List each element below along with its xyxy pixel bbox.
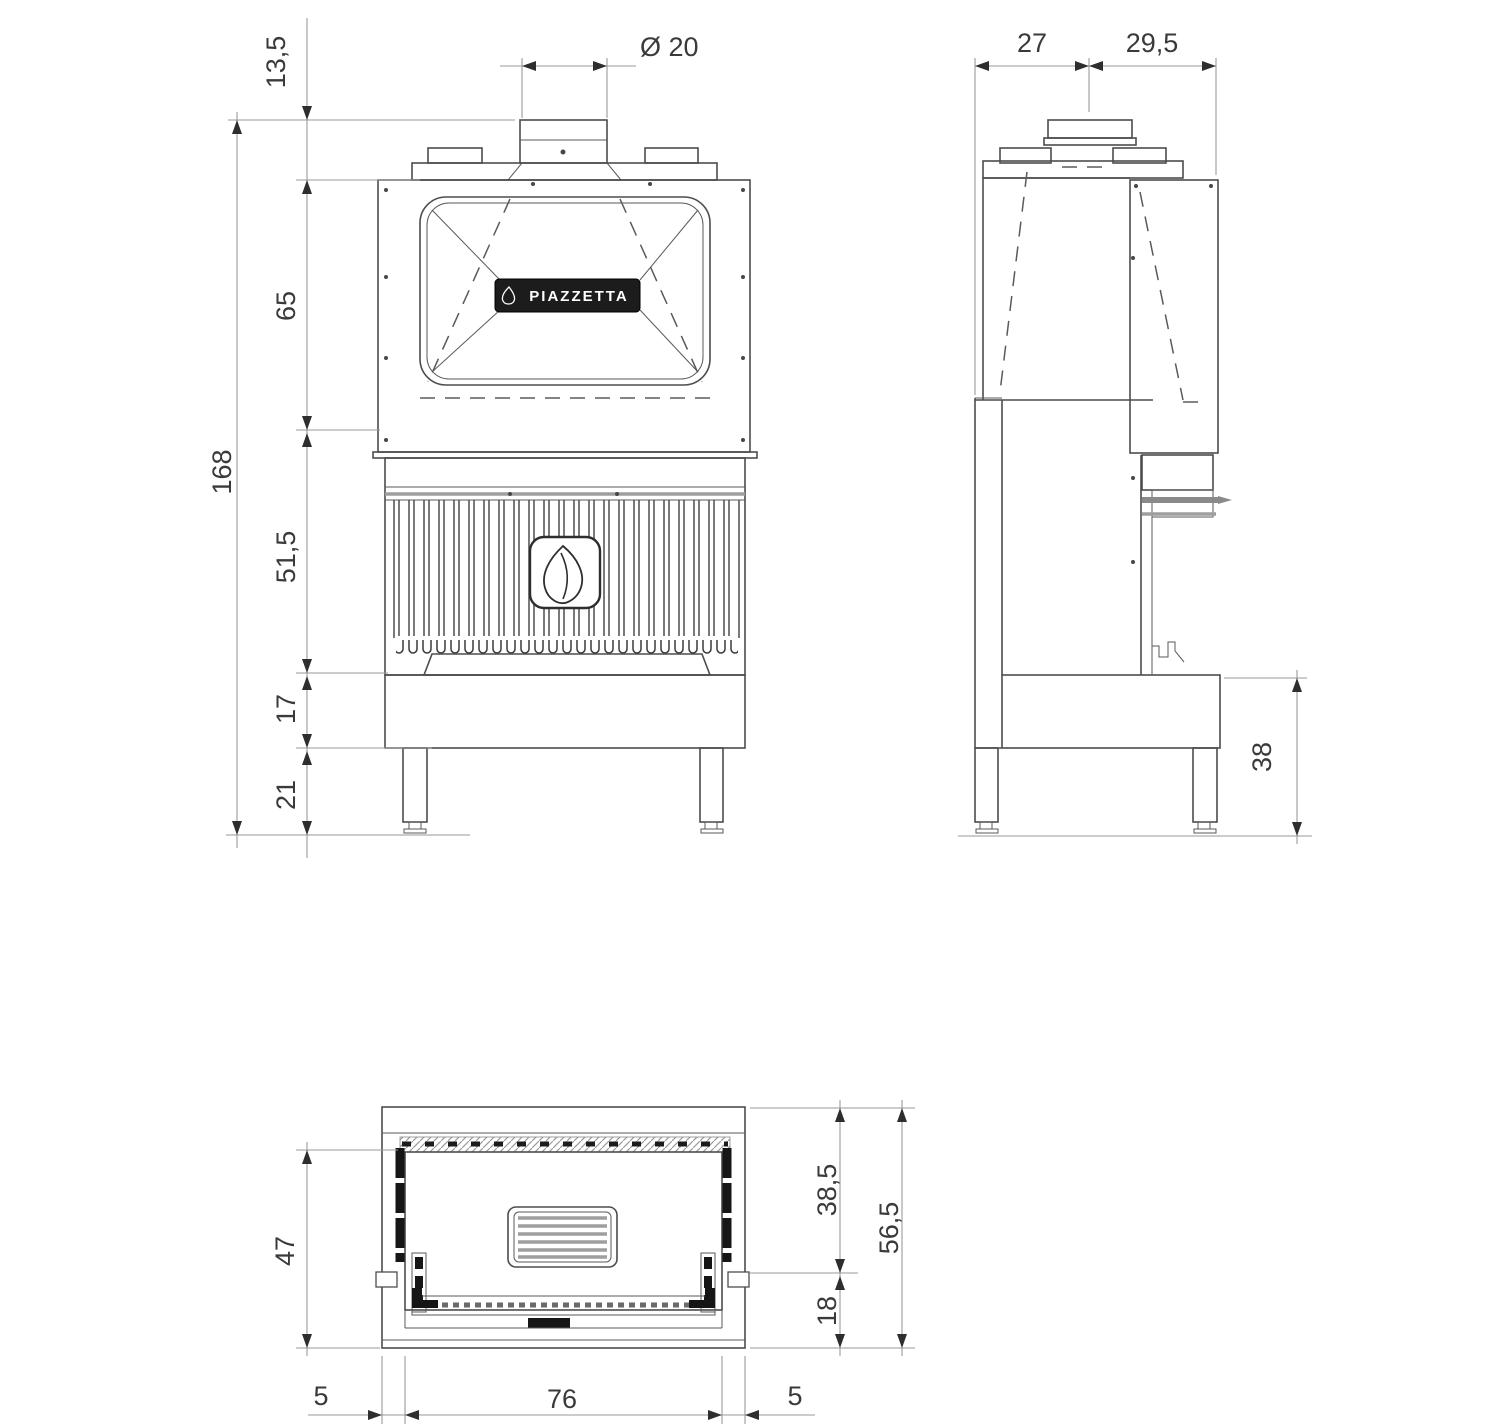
dim-label-total-depth: 56,5 [874, 1202, 904, 1255]
left-side-notch [376, 1272, 397, 1287]
louver-vent [508, 1207, 617, 1267]
dim-label-front-section-depth: 38,5 [812, 1164, 842, 1217]
side-hood [975, 167, 1218, 564]
brand-label: PIAZZETTA [529, 288, 628, 305]
dim-label-base-height: 38 [1247, 742, 1277, 772]
front-firebox [385, 458, 745, 675]
grate-teeth [396, 636, 738, 654]
side-flue-assembly [983, 120, 1183, 178]
dim-label-offset-top: 13,5 [261, 36, 291, 89]
dim-label-inner-depth: 47 [270, 1236, 300, 1266]
dim-label-leg-height: 21 [271, 780, 301, 810]
front-plinth-and-legs [385, 675, 745, 833]
dim-label-left-side: 5 [313, 1381, 328, 1411]
side-view [958, 120, 1240, 836]
dim-label-total-height: 168 [207, 449, 237, 494]
top-view [376, 1107, 749, 1348]
damper-handle-bar [1142, 497, 1218, 503]
dim-label-hood-height: 65 [271, 291, 301, 321]
front-brand-plate: PIAZZETTA [495, 279, 640, 312]
dim-label-rear-depth: 29,5 [1126, 28, 1179, 58]
technical-drawing-canvas: PIAZZETTA [0, 0, 1500, 1427]
side-bracket [1152, 642, 1184, 662]
firebox-flame-badge [530, 537, 600, 608]
front-hood [373, 180, 757, 458]
front-channel [412, 1253, 715, 1328]
dim-label-opening-width: 76 [547, 1384, 577, 1414]
latch-block [528, 1318, 570, 1328]
side-body [958, 398, 1240, 836]
front-view: PIAZZETTA [373, 120, 757, 833]
dim-label-front-depth: 27 [1017, 28, 1047, 58]
dim-label-flue-diameter: Ø 20 [640, 32, 699, 62]
right-side-notch [728, 1272, 749, 1287]
fireplace-dimension-drawing: PIAZZETTA [0, 0, 1500, 1427]
dim-label-right-side: 5 [787, 1381, 802, 1411]
ash-tray [424, 654, 710, 675]
front-flue-assembly [412, 120, 717, 180]
dim-label-plinth-height: 17 [271, 694, 301, 724]
side-dimensions: 27 29,5 38 [975, 28, 1312, 844]
dim-label-rear-section-depth: 18 [812, 1296, 842, 1326]
front-dimensions: 13,5 Ø 20 65 168 51,5 17 21 [207, 18, 699, 858]
dim-label-firebox-height: 51,5 [271, 531, 301, 584]
